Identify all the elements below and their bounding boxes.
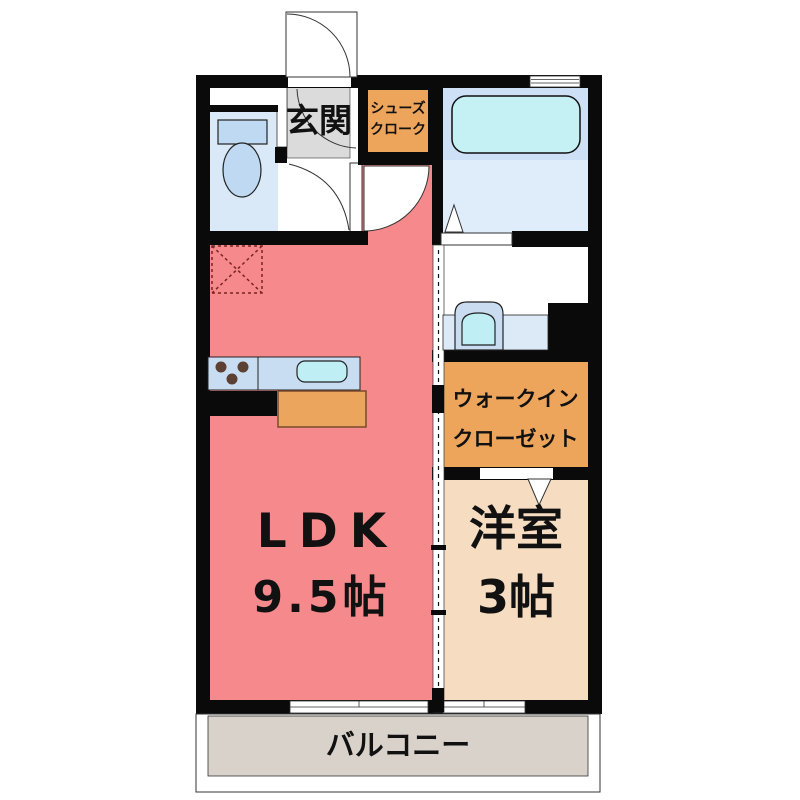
kitchen-cabinet	[278, 391, 366, 427]
balcony-label: バルコニー	[208, 730, 588, 762]
floor-plan: 玄関 シューズ クローク ウォークイン クローゼット LDK 9.5帖 洋室 3…	[0, 0, 800, 800]
western-room-area-label: 3帖	[443, 572, 589, 623]
walk-in-closet-label-line2: クローゼット	[443, 419, 588, 459]
wall-toilet-window-inner	[203, 105, 278, 112]
wall-bathroom-left	[432, 75, 443, 245]
wall-wic-top	[432, 350, 588, 362]
wall-under-shoes-closet	[358, 152, 433, 165]
ldk-floor	[210, 245, 433, 700]
wall-left	[196, 75, 210, 714]
walk-in-closet-label: ウォークイン クローゼット	[443, 379, 588, 459]
entrance-label: 玄関	[284, 103, 354, 139]
stove-burner-1	[216, 362, 227, 373]
toilet-tank	[218, 120, 267, 144]
stove-burner-2	[238, 362, 249, 373]
wall-right	[588, 75, 602, 714]
washbasin	[443, 302, 548, 350]
ldk-door-leaf	[350, 163, 362, 235]
stove-burner-3	[227, 374, 238, 385]
western-balcony-window	[443, 701, 525, 713]
ldk-balcony-window	[290, 701, 428, 713]
wall-kitchen-block	[208, 391, 277, 416]
kitchen-sink	[297, 361, 347, 382]
bathtub	[452, 96, 580, 153]
ldk-label: LDK	[210, 506, 433, 558]
wall-bathroom-bottom	[512, 231, 588, 247]
western-room-label: 洋室	[443, 504, 589, 556]
toilet-window	[210, 88, 278, 105]
toilet-bowl	[223, 143, 261, 197]
shoes-closet-label-line2: クローク	[363, 120, 433, 141]
bathroom-door	[441, 233, 512, 245]
hall-door-swing-arc	[289, 164, 349, 230]
shoes-closet-label-line1: シューズ	[363, 99, 433, 120]
bathroom-lower-floor	[443, 160, 588, 233]
partition-black-lower	[432, 688, 444, 712]
walk-in-closet-label-line1: ウォークイン	[443, 379, 588, 419]
entrance-doorway-gap	[288, 76, 351, 87]
ldk-area-label: 9.5帖	[210, 574, 433, 622]
shoes-closet-label: シューズ クローク	[363, 99, 433, 141]
bathroom-window	[530, 76, 580, 87]
wic-opening	[480, 468, 553, 479]
wall-under-hall	[196, 231, 368, 245]
vanity-basin-inner	[462, 313, 495, 345]
wall-toilet-corner	[275, 147, 287, 163]
bathroom-window-frame	[530, 76, 580, 87]
entrance-door-swing-box	[286, 12, 357, 77]
